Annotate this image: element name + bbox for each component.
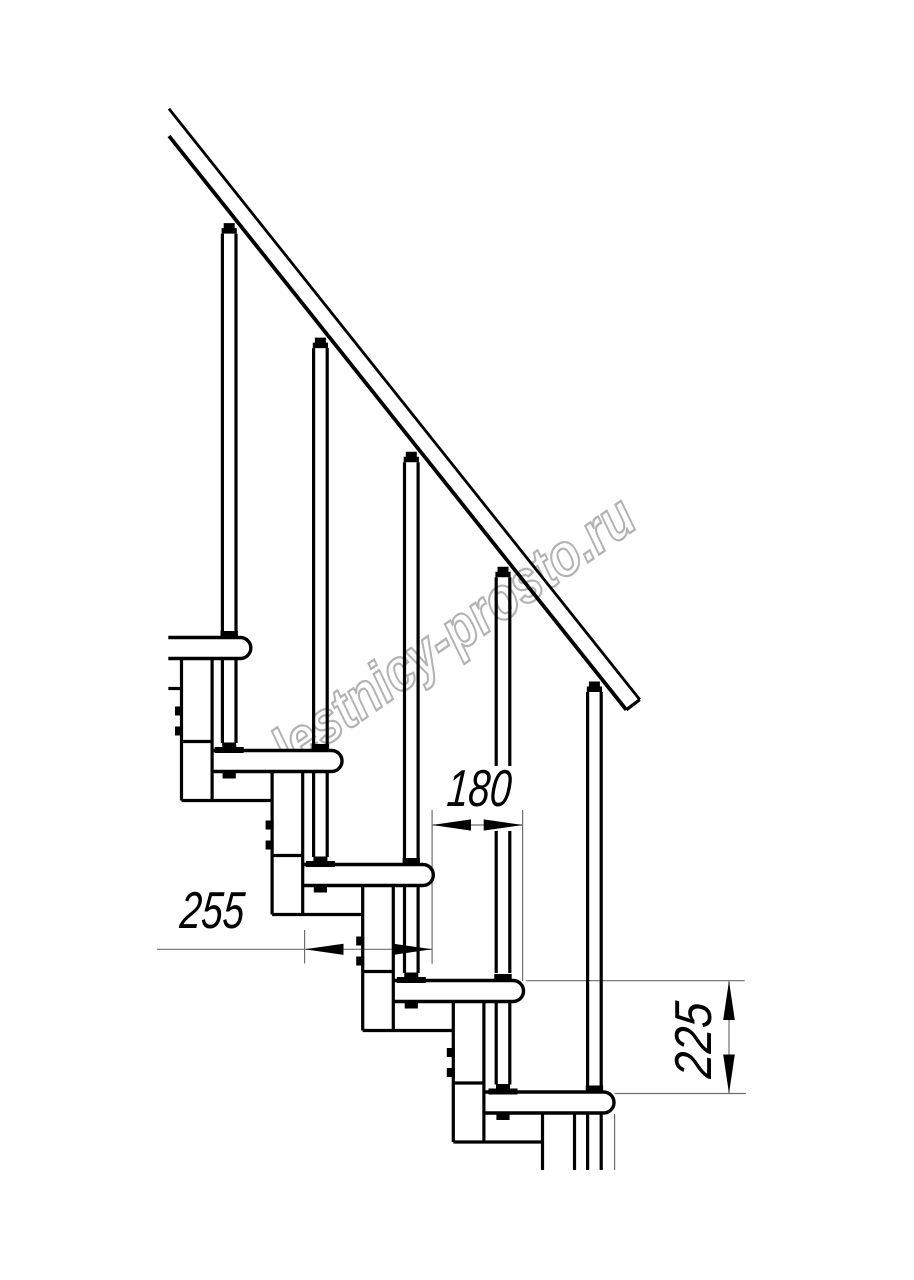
svg-text:180: 180: [445, 759, 514, 817]
svg-text:255: 255: [177, 881, 247, 939]
svg-text:225: 225: [665, 999, 722, 1081]
